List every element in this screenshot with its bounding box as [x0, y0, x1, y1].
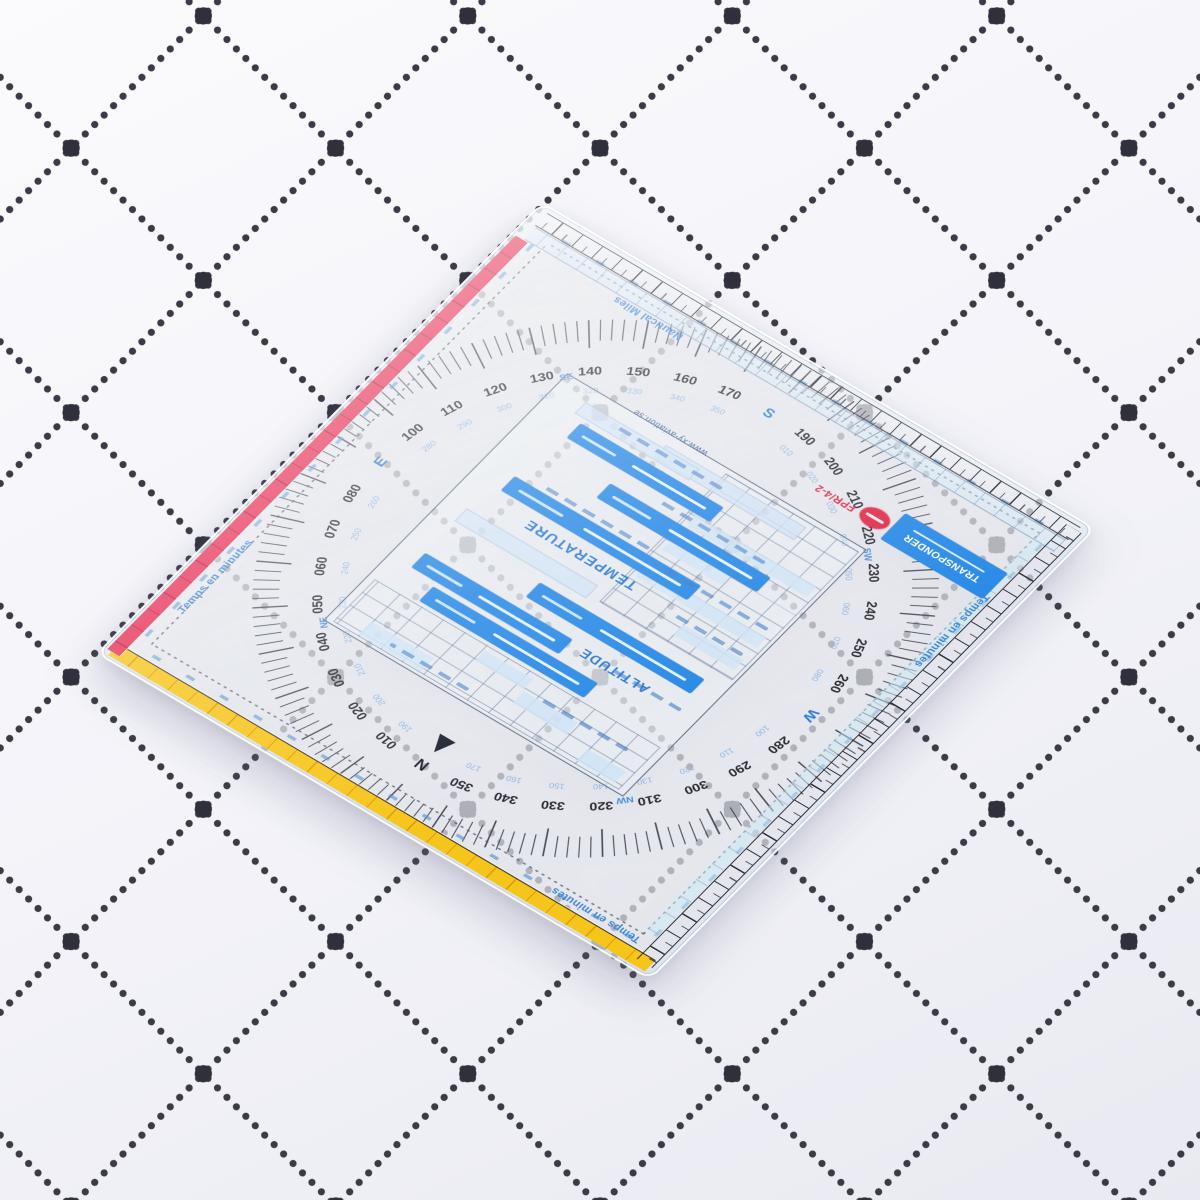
svg-text:260: 260 [365, 494, 382, 509]
svg-text:340: 340 [492, 790, 520, 808]
photo-scene: 0101900202000302100402200502300602400702… [0, 0, 1200, 1200]
svg-text:N: N [412, 755, 434, 773]
svg-text:190: 190 [395, 719, 414, 734]
svg-text:100: 100 [398, 421, 427, 444]
svg-text:130: 130 [528, 368, 555, 385]
svg-text:170: 170 [715, 382, 744, 402]
svg-text:300: 300 [682, 778, 710, 798]
svg-text:150: 150 [548, 781, 566, 791]
svg-text:280: 280 [764, 734, 793, 757]
svg-text:120: 120 [481, 380, 509, 400]
svg-text:210: 210 [351, 662, 367, 677]
svg-text:120: 120 [677, 763, 696, 776]
svg-text:290: 290 [455, 417, 474, 431]
svg-text:010: 010 [777, 443, 796, 458]
svg-text:040: 040 [312, 631, 333, 652]
svg-text:240: 240 [339, 561, 352, 574]
svg-text:NW: NW [615, 794, 634, 806]
svg-text:330: 330 [540, 798, 566, 813]
svg-text:350: 350 [708, 403, 727, 416]
svg-text:080: 080 [809, 668, 826, 683]
svg-text:070: 070 [320, 518, 344, 540]
svg-text:290: 290 [725, 758, 754, 779]
svg-text:070: 070 [828, 636, 844, 650]
svg-text:100: 100 [753, 724, 772, 739]
svg-text:010: 010 [372, 729, 400, 752]
svg-text:W: W [798, 706, 823, 725]
svg-text:310: 310 [636, 791, 663, 808]
svg-text:050: 050 [309, 594, 326, 614]
svg-text:250: 250 [348, 527, 364, 541]
svg-text:340: 340 [668, 392, 687, 404]
svg-text:190: 190 [791, 425, 819, 448]
svg-text:350: 350 [447, 775, 476, 795]
svg-text:320: 320 [589, 799, 613, 813]
svg-text:330: 330 [626, 386, 644, 396]
svg-text:110: 110 [717, 746, 736, 760]
svg-text:170: 170 [464, 760, 483, 773]
svg-text:160: 160 [671, 370, 699, 388]
svg-text:060: 060 [839, 602, 852, 615]
svg-text:S: S [759, 405, 780, 422]
svg-text:250: 250 [847, 637, 871, 659]
svg-text:110: 110 [437, 398, 466, 419]
svg-text:080: 080 [339, 482, 365, 505]
svg-text:020: 020 [344, 699, 371, 722]
svg-text:260: 260 [826, 672, 852, 695]
svg-text:240: 240 [861, 601, 881, 621]
svg-text:230: 230 [865, 563, 882, 583]
svg-text:200: 200 [370, 692, 388, 707]
svg-text:030: 030 [324, 666, 348, 689]
svg-text:140: 140 [578, 364, 602, 378]
svg-text:160: 160 [504, 774, 523, 786]
svg-text:060: 060 [310, 556, 330, 576]
svg-text:E: E [370, 454, 392, 470]
svg-text:150: 150 [625, 364, 651, 379]
svg-text:280: 280 [419, 439, 438, 454]
svg-text:300: 300 [495, 401, 514, 414]
svg-text:200: 200 [820, 455, 847, 478]
